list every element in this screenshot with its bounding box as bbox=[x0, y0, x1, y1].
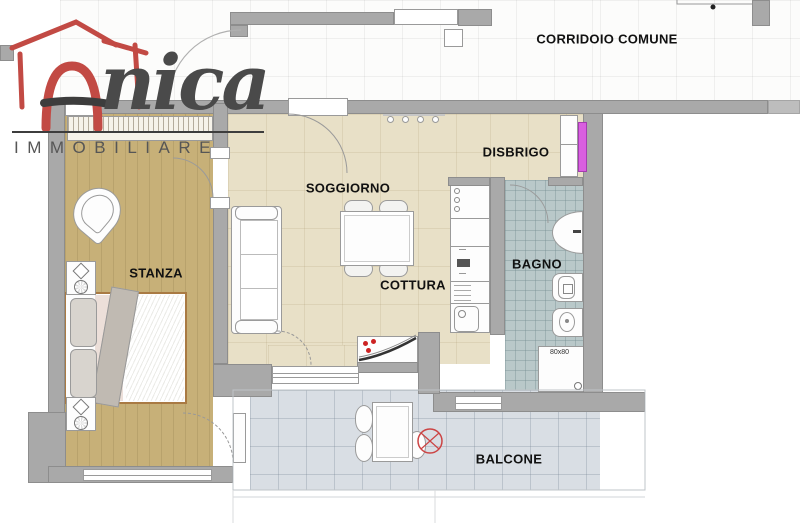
bedroom-door-jamb bbox=[210, 197, 230, 209]
coat-hook bbox=[432, 116, 439, 123]
corridor-door-opening bbox=[394, 9, 458, 25]
bedroom-window bbox=[83, 469, 212, 481]
decor-diamond-icon bbox=[73, 263, 90, 280]
faucet-icon bbox=[573, 230, 581, 233]
room-label-cottura: COTTURA bbox=[380, 278, 446, 293]
decor-plant-icon bbox=[74, 280, 88, 294]
sofa-seat bbox=[240, 220, 278, 320]
bathroom-top-wall-right bbox=[548, 177, 583, 186]
fridge bbox=[451, 184, 489, 219]
bidet-basin bbox=[559, 312, 575, 332]
shower-size-label: 80x80 bbox=[550, 349, 569, 356]
bedroom-living-wall-lower bbox=[213, 208, 228, 364]
oven bbox=[451, 246, 489, 282]
coat-hook bbox=[387, 116, 394, 123]
bed-pillow bbox=[70, 298, 97, 347]
decor-diamond-icon bbox=[73, 399, 90, 416]
electrical-panel-marker bbox=[578, 122, 587, 172]
corridor-top-wall-right bbox=[458, 9, 492, 26]
nightstand bbox=[66, 397, 96, 431]
kitchen-cabinet bbox=[451, 218, 489, 247]
sofa-armrest bbox=[235, 320, 278, 334]
bathroom-window bbox=[455, 396, 502, 410]
balcony-chair bbox=[355, 434, 373, 462]
room-label-balcone: BALCONE bbox=[476, 452, 542, 467]
decor-plant-icon bbox=[74, 416, 88, 430]
apartment-top-wall-extension bbox=[768, 100, 800, 114]
coat-hook bbox=[417, 116, 424, 123]
room-label-stanza: STANZA bbox=[129, 266, 183, 281]
floor-plan: 80x80 bbox=[0, 0, 800, 528]
balcony-edge-line bbox=[233, 490, 435, 523]
kitchen-sink bbox=[451, 303, 489, 334]
room-label-corridoio: CORRIDOIO COMUNE bbox=[536, 32, 677, 47]
bed-pillow bbox=[70, 349, 97, 398]
brand-tagline: IMMOBILIARE bbox=[14, 138, 219, 158]
balcony-door-leaf bbox=[233, 413, 246, 463]
room-label-disbrigo: DISBRIGO bbox=[483, 145, 550, 160]
balcony-table bbox=[372, 402, 413, 462]
shower-drain-icon bbox=[574, 382, 582, 390]
logo-left-wall bbox=[20, 54, 22, 107]
room-label-soggiorno: SOGGIORNO bbox=[306, 181, 390, 196]
kitchen-drawers bbox=[451, 281, 489, 304]
toilet-bowl bbox=[558, 276, 575, 299]
coat-hook bbox=[402, 116, 409, 123]
living-balcony-wall-block bbox=[213, 364, 272, 397]
kitchen-bath-wall bbox=[490, 177, 505, 335]
dining-table bbox=[340, 211, 414, 266]
kitchen-top-stub-wall bbox=[448, 177, 490, 186]
brand-divider bbox=[12, 131, 264, 133]
hob-burner bbox=[371, 339, 376, 344]
brand-name: nica bbox=[100, 38, 268, 127]
room-label-bagno: BAGNO bbox=[512, 257, 562, 272]
sofa-armrest bbox=[235, 206, 278, 220]
corridor-door-jamb bbox=[444, 29, 463, 47]
balcony-french-window bbox=[272, 366, 359, 384]
corridor-right-wall-stub bbox=[752, 0, 770, 26]
kitchen-counter bbox=[450, 183, 490, 333]
nightstand bbox=[66, 261, 96, 295]
hob-burner bbox=[363, 341, 368, 346]
balcony-chair bbox=[355, 405, 373, 433]
storage-cabinet bbox=[560, 115, 578, 177]
kitchen-bottom-wall bbox=[357, 362, 418, 373]
balcony-door-threshold-floor bbox=[268, 345, 357, 367]
kitchen-balcony-corner-wall bbox=[418, 332, 440, 394]
hob-burner bbox=[366, 348, 371, 353]
agency-logo: nica IMMOBILIARE bbox=[0, 0, 300, 175]
corridor-floor-upper bbox=[600, 0, 800, 100]
